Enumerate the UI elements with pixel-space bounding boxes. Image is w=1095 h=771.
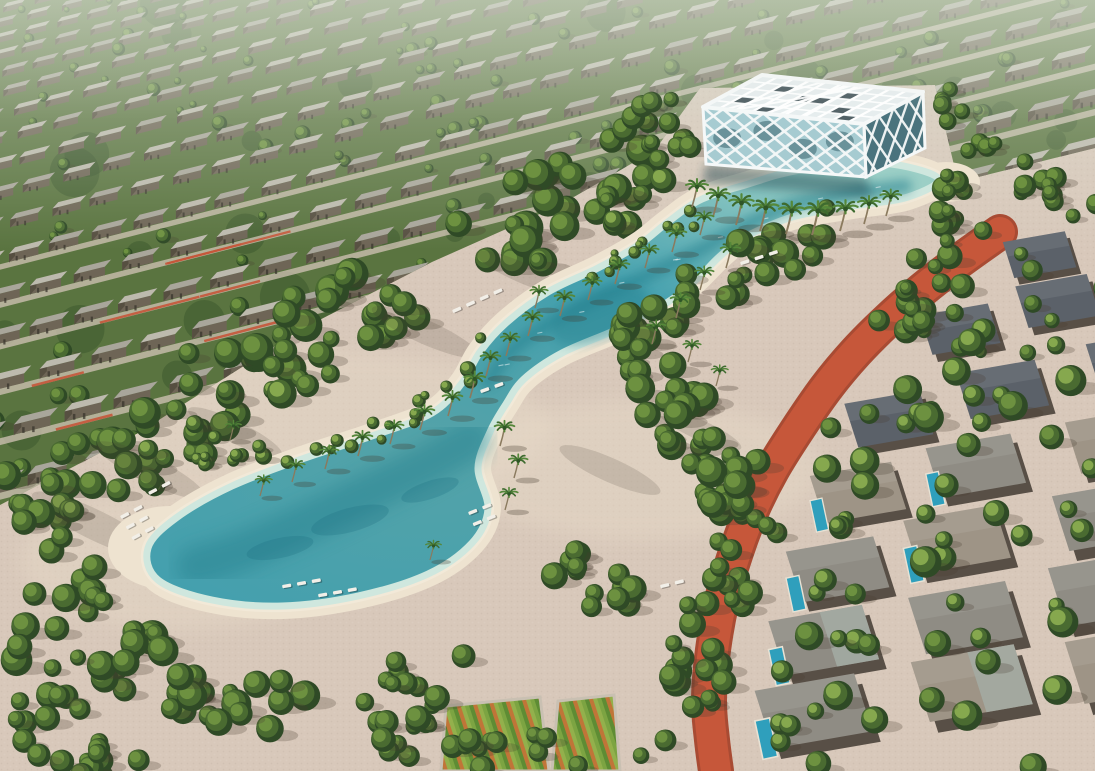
community-aerial-render: Aerial render of a master-planned reside… [0, 0, 1095, 771]
horizon-haze [0, 0, 1095, 120]
screenshot-stage: Aerial render of a master-planned reside… [0, 0, 1095, 771]
